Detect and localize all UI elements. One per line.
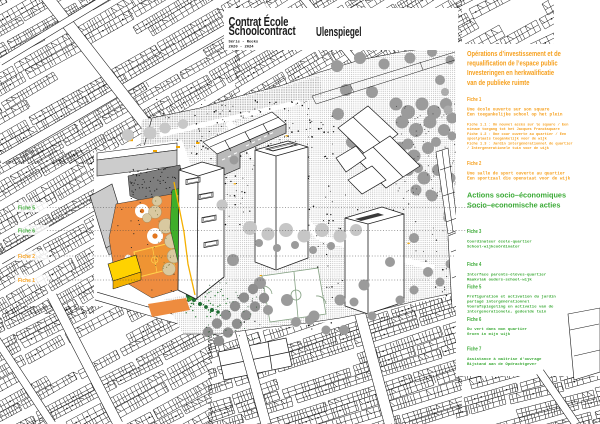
svg-text:Schoolcontract: Schoolcontract xyxy=(229,25,296,39)
svg-text:Fiche 5: Fiche 5 xyxy=(18,205,35,211)
svg-text:Raakvlak ouders-school-wijk: Raakvlak ouders-school-wijk xyxy=(467,278,532,283)
svg-text:Coordinateur école-quartier: Coordinateur école-quartier xyxy=(467,240,532,245)
svg-text:Socio–economische acties: Socio–economische acties xyxy=(467,201,560,210)
svg-text:Opérations d’investissement et: Opérations d’investissement et de xyxy=(467,50,561,58)
svg-text:Groen in mijn wijk: Groen in mijn wijk xyxy=(467,332,511,337)
svg-text:/ Intergenerationele tuin voor: / Intergenerationele tuin voor de wijk xyxy=(467,146,550,151)
svg-text:nieuwe toegang tot het Jacques: nieuwe toegang tot het Jacques Francksqu… xyxy=(467,127,560,132)
svg-text:Préfiguration et activation du: Préfiguration et activation du jardin xyxy=(467,295,556,300)
svg-text:Fiche 6: Fiche 6 xyxy=(18,228,35,234)
svg-text:Investeringen en herkwalificat: Investeringen en herkwalificatie xyxy=(467,70,554,78)
svg-text:Ulenspiegel: Ulenspiegel xyxy=(316,25,362,39)
svg-text:Fiche 1: Fiche 1 xyxy=(18,278,35,284)
svg-text:Série - Reeks: Série - Reeks xyxy=(229,40,259,45)
svg-text:Du vert dans mon quartier: Du vert dans mon quartier xyxy=(467,327,528,332)
svg-text:School-wijkcoördinator: School-wijkcoördinator xyxy=(467,245,520,250)
svg-text:Bijstand aan de Opdrachtgever: Bijstand aan de Opdrachtgever xyxy=(467,362,537,367)
svg-text:Assistance à maîtrise d’ouvrag: Assistance à maîtrise d’ouvrage xyxy=(467,357,542,362)
svg-text:Een sportzaal die openstaat vo: Een sportzaal die openstaat voor de wijk xyxy=(467,177,571,182)
svg-text:2020 - 2024: 2020 - 2024 xyxy=(229,46,255,50)
svg-text:Een toegankelijke school op he: Een toegankelijke school op het plein xyxy=(467,113,563,118)
svg-text:requalification de l’espace pu: requalification de l’espace public xyxy=(467,60,558,68)
svg-text:Fiche 1.3 : Jardin intergénéra: Fiche 1.3 : Jardin intergénérationnel de… xyxy=(467,141,573,146)
svg-text:Fiche 1.1 : Un nouvel accès su: Fiche 1.1 : Un nouvel accès sur le squar… xyxy=(467,123,568,128)
svg-text:Fiche 5: Fiche 5 xyxy=(467,284,482,290)
svg-text:Fiche 3: Fiche 3 xyxy=(467,229,482,235)
svg-text:Fiche 1.2 : Une cour ouverte a: Fiche 1.2 : Une cour ouverte au quartier… xyxy=(467,132,566,137)
svg-text:Fiche 2: Fiche 2 xyxy=(18,254,35,260)
svg-text:Fiche 1: Fiche 1 xyxy=(467,97,482,103)
svg-text:Interface parents-élèves-quart: Interface parents-élèves-quartier xyxy=(467,273,547,278)
svg-text:Fiche 4: Fiche 4 xyxy=(467,262,482,268)
svg-text:intergenerationele, gedeelde t: intergenerationele, gedeelde tuin xyxy=(467,310,547,315)
svg-text:Fiche 6: Fiche 6 xyxy=(467,317,482,323)
svg-text:Fiche 7: Fiche 7 xyxy=(467,346,482,352)
svg-text:speelplaats toegankelijk voor: speelplaats toegankelijk voor de wijk xyxy=(467,137,548,142)
svg-text:Actions socio–économiques: Actions socio–économiques xyxy=(467,190,566,199)
svg-text:Fiche 2: Fiche 2 xyxy=(467,161,482,167)
svg-text:van de publieke ruimte: van de publieke ruimte xyxy=(467,79,530,87)
svg-text:partagé intergénérationnel: partagé intergénérationnel xyxy=(467,300,530,305)
svg-text:Voorafspiegeling en activatie: Voorafspiegeling en activatie van de xyxy=(467,305,554,310)
